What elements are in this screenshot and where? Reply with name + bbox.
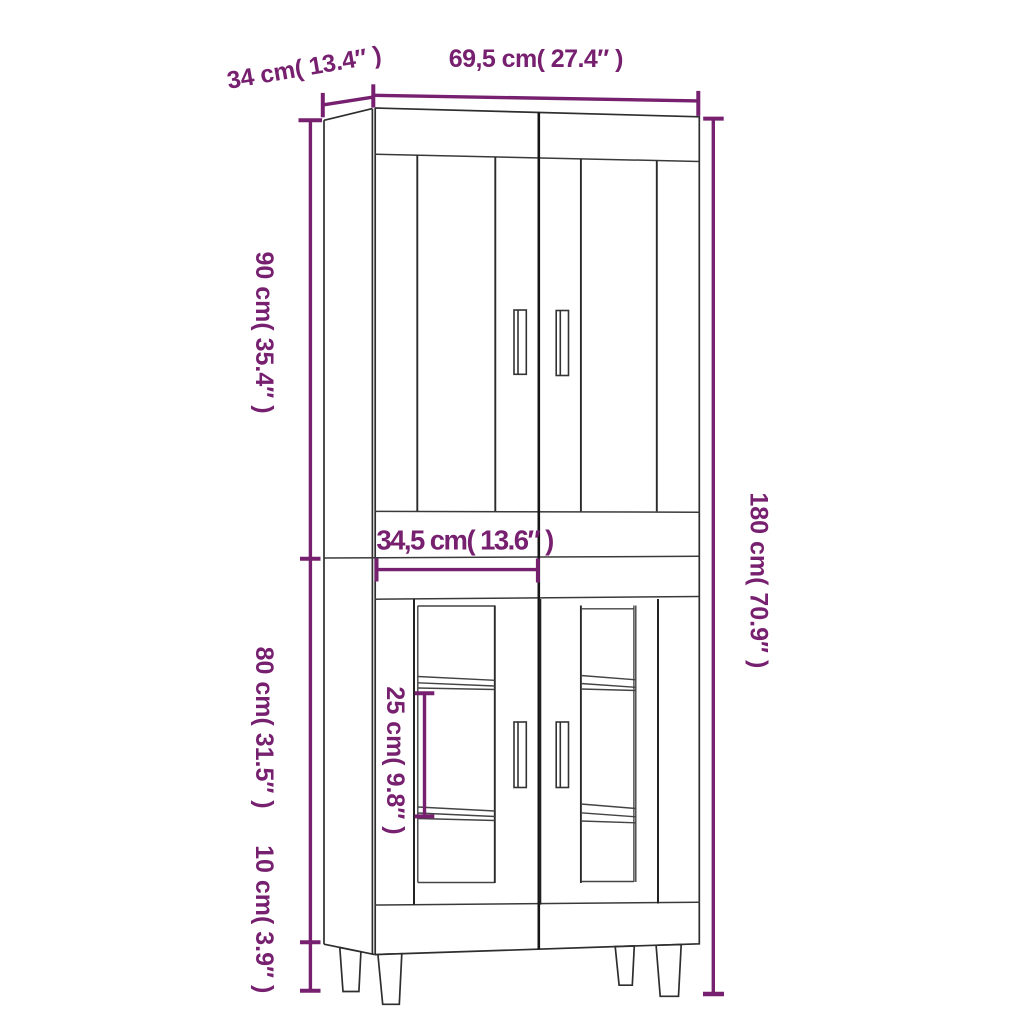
svg-text:69,5 cm( 27.4″ ): 69,5 cm( 27.4″ )	[449, 45, 623, 73]
svg-text:10 cm( 3.9″ ): 10 cm( 3.9″ )	[250, 845, 278, 993]
svg-text:34,5 cm( 13.6″ ): 34,5 cm( 13.6″ )	[376, 525, 553, 556]
svg-text:180 cm( 70.9″ ): 180 cm( 70.9″ )	[745, 492, 773, 668]
svg-text:90 cm( 35.4″ ): 90 cm( 35.4″ )	[250, 251, 278, 413]
svg-text:80 cm( 31.5″ ): 80 cm( 31.5″ )	[250, 647, 278, 809]
svg-text:25 cm( 9.8″ ): 25 cm( 9.8″ )	[381, 686, 409, 834]
